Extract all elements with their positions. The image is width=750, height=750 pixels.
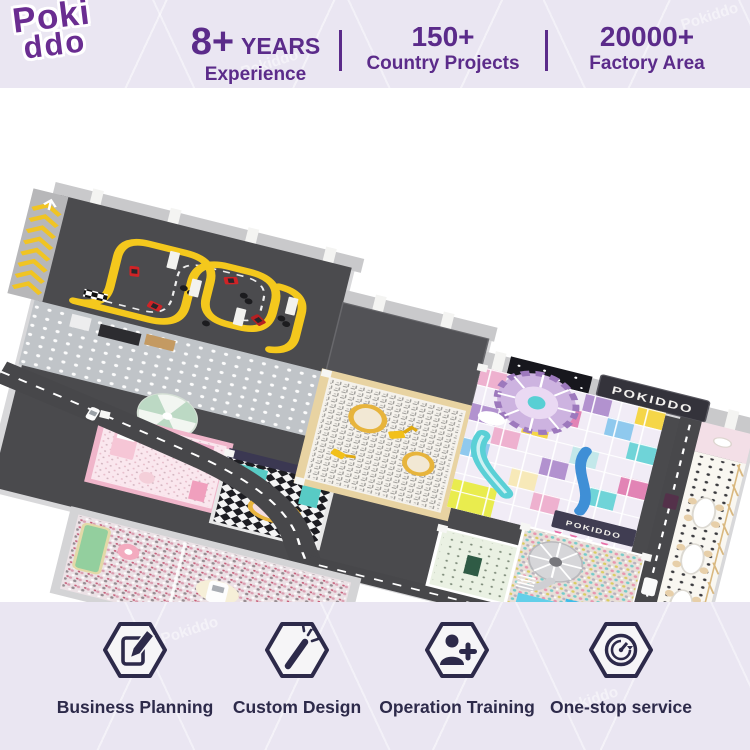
stat-years-unit: YEARS xyxy=(241,33,320,59)
service-label: Business Planning xyxy=(50,697,220,718)
service-custom-design: Custom Design xyxy=(212,620,382,718)
service-business-planning: Business Planning xyxy=(50,620,220,718)
floorplan-svg: POKIDDO xyxy=(0,88,750,602)
stat-years: 8+YEARS Experience xyxy=(168,21,343,86)
service-operation-training: Operation Training xyxy=(372,620,542,718)
service-label: Custom Design xyxy=(212,697,382,718)
magic-wand-icon xyxy=(264,620,330,680)
logo-line2: ddo xyxy=(14,27,94,62)
stat-projects-value: 150+ xyxy=(411,21,474,52)
stat-years-value: 8+ xyxy=(191,21,234,63)
circular-arrows-icon xyxy=(588,620,654,680)
stat-projects-label: Country Projects xyxy=(358,53,528,75)
pokiddo-logo: Poki ddo xyxy=(11,0,95,62)
stat-factory-label: Factory Area xyxy=(562,53,732,75)
notepad-pencil-icon xyxy=(102,620,168,680)
service-one-stop: One-stop service xyxy=(536,620,706,718)
playground-floorplan-image: POKIDDO xyxy=(0,88,750,602)
stat-projects: 150+ Country Projects xyxy=(358,21,528,75)
stat-divider xyxy=(339,30,342,71)
stat-factory: 20000+ Factory Area xyxy=(562,21,732,75)
stat-years-label: Experience xyxy=(168,64,343,86)
stat-divider xyxy=(545,30,548,71)
person-plus-icon xyxy=(424,620,490,680)
service-label: Operation Training xyxy=(372,697,542,718)
service-label: One-stop service xyxy=(536,697,706,718)
stat-factory-value: 20000+ xyxy=(600,21,694,52)
